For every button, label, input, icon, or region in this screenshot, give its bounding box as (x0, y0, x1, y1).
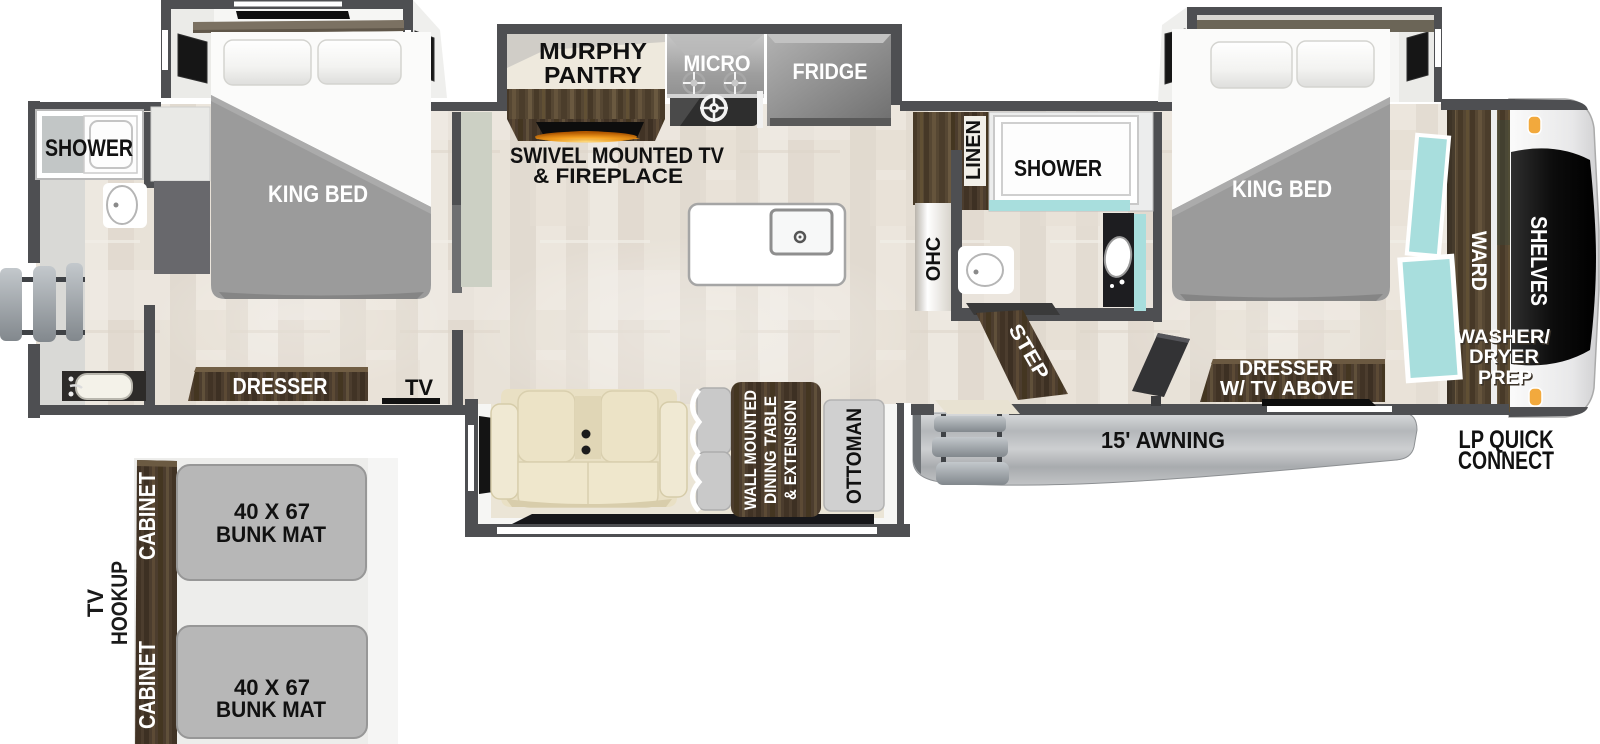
svg-text:MURPHY: MURPHY (539, 38, 647, 64)
svg-text:HOOKUP: HOOKUP (107, 561, 132, 645)
svg-text:CONNECT: CONNECT (1458, 447, 1554, 475)
svg-text:SHOWER: SHOWER (45, 135, 133, 162)
svg-text:15' AWNING: 15' AWNING (1101, 427, 1225, 453)
svg-text:DRESSER: DRESSER (1239, 357, 1333, 380)
svg-text:DRESSER: DRESSER (233, 373, 328, 399)
svg-text:PREP: PREP (1478, 368, 1532, 389)
svg-text:DINING TABLE: DINING TABLE (761, 396, 780, 504)
svg-text:SHOWER: SHOWER (1014, 155, 1102, 181)
svg-text:PANTRY: PANTRY (544, 62, 642, 88)
svg-text:DRYER: DRYER (1469, 347, 1539, 368)
svg-text:OHC: OHC (923, 237, 945, 281)
svg-text:FRIDGE: FRIDGE (793, 59, 868, 84)
svg-text:TV: TV (405, 375, 433, 400)
svg-text:LINEN: LINEN (963, 120, 985, 180)
svg-text:SHELVES: SHELVES (1526, 216, 1552, 306)
svg-text:W/ TV ABOVE: W/ TV ABOVE (1220, 378, 1354, 400)
svg-text:BUNK MAT: BUNK MAT (216, 522, 327, 547)
svg-text:40 X 67: 40 X 67 (234, 499, 310, 524)
svg-text:& EXTENSION: & EXTENSION (781, 400, 800, 500)
svg-text:KING BED: KING BED (1232, 176, 1332, 203)
svg-text:BUNK MAT: BUNK MAT (216, 697, 327, 722)
svg-text:CABINET: CABINET (134, 641, 160, 729)
svg-text:TV: TV (83, 589, 108, 617)
svg-text:WARD: WARD (1467, 231, 1490, 291)
svg-text:WASHER/: WASHER/ (1456, 327, 1551, 348)
svg-text:OTTOMAN: OTTOMAN (843, 408, 866, 504)
svg-text:CABINET: CABINET (134, 472, 160, 560)
svg-text:WALL MOUNTED: WALL MOUNTED (741, 390, 760, 510)
svg-text:KING BED: KING BED (268, 181, 368, 208)
svg-text:& FIREPLACE: & FIREPLACE (533, 165, 683, 188)
